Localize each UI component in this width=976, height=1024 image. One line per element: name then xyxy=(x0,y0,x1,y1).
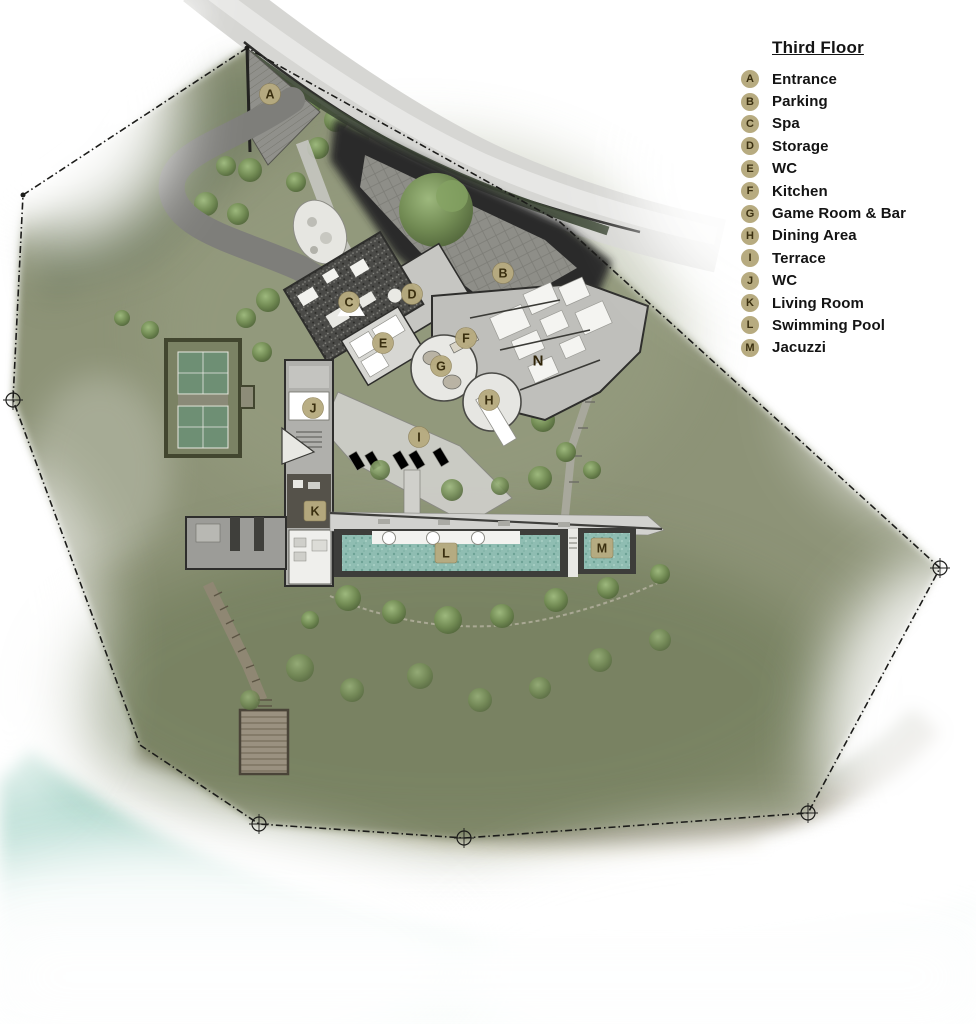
legend-badge-f: F xyxy=(741,182,759,200)
legend-badge-g: G xyxy=(741,205,759,223)
legend-badge-i: I xyxy=(741,249,759,267)
legend-badge-e: E xyxy=(741,160,759,178)
legend-item-e: EWC xyxy=(741,158,971,180)
plan-marker-k: K xyxy=(304,501,326,521)
svg-text:N: N xyxy=(533,352,544,369)
boundary-corner-dot xyxy=(245,46,250,51)
svg-text:K: K xyxy=(310,505,319,519)
legend-badge-k: K xyxy=(741,294,759,312)
plan-marker-g: G xyxy=(431,356,452,377)
legend-label-f: Kitchen xyxy=(772,183,828,200)
legend-badge-h: H xyxy=(741,227,759,245)
legend-item-a: AEntrance xyxy=(741,68,971,90)
plan-marker-e: E xyxy=(373,333,394,354)
legend-label-e: WC xyxy=(772,160,797,177)
legend-badge-c: C xyxy=(741,115,759,133)
legend-item-i: ITerrace xyxy=(741,247,971,269)
legend-item-g: GGame Room & Bar xyxy=(741,202,971,224)
legend-label-a: Entrance xyxy=(772,71,837,88)
svg-text:D: D xyxy=(407,288,416,302)
tennis-court xyxy=(166,340,254,456)
plan-marker-l: L xyxy=(435,543,457,563)
legend-label-g: Game Room & Bar xyxy=(772,205,906,222)
svg-text:H: H xyxy=(484,394,493,408)
svg-text:M: M xyxy=(597,542,607,556)
svg-text:J: J xyxy=(310,402,317,416)
legend-label-d: Storage xyxy=(772,138,829,155)
plan-marker-m: M xyxy=(591,538,613,558)
plan-marker-h: H xyxy=(479,390,500,411)
legend-badge-l: L xyxy=(741,316,759,334)
plan-marker-a: A xyxy=(260,84,281,105)
legend-item-l: LSwimming Pool xyxy=(741,314,971,336)
legend-item-f: FKitchen xyxy=(741,180,971,202)
plan-marker-c: C xyxy=(339,292,360,313)
svg-text:I: I xyxy=(417,431,420,445)
plan-marker-b: B xyxy=(493,263,514,284)
svg-text:L: L xyxy=(442,547,450,561)
legend-item-c: CSpa xyxy=(741,113,971,135)
svg-text:G: G xyxy=(436,360,446,374)
plan-marker-j: J xyxy=(303,398,324,419)
plan-marker-d: D xyxy=(402,284,423,305)
plan-marker-i: I xyxy=(409,427,430,448)
legend-badge-b: B xyxy=(741,93,759,111)
legend-badge-j: J xyxy=(741,272,759,290)
boundary-corner-dot xyxy=(21,193,26,198)
pool-zone xyxy=(330,512,664,577)
legend-badge-d: D xyxy=(741,137,759,155)
legend-label-j: WC xyxy=(772,272,797,289)
pool-steps xyxy=(568,529,578,577)
legend-items: AEntranceBParkingCSpaDStorageEWCFKitchen… xyxy=(741,68,971,359)
legend-label-i: Terrace xyxy=(772,250,826,267)
legend-label-m: Jacuzzi xyxy=(772,339,826,356)
legend-label-k: Living Room xyxy=(772,295,864,312)
svg-text:C: C xyxy=(344,296,353,310)
legend-item-j: JWC xyxy=(741,270,971,292)
legend: Third Floor AEntranceBParkingCSpaDStorag… xyxy=(741,38,971,359)
garage-block xyxy=(186,517,286,569)
plan-marker-n: N xyxy=(533,352,544,369)
legend-item-b: BParking xyxy=(741,90,971,112)
svg-text:E: E xyxy=(379,337,387,351)
legend-item-k: KLiving Room xyxy=(741,292,971,314)
legend-item-d: DStorage xyxy=(741,135,971,157)
plan-marker-f: F xyxy=(456,328,477,349)
west-wing xyxy=(282,360,333,586)
legend-item-h: HDining Area xyxy=(741,225,971,247)
legend-label-c: Spa xyxy=(772,115,800,132)
legend-label-l: Swimming Pool xyxy=(772,317,885,334)
svg-text:A: A xyxy=(265,88,274,102)
legend-badge-m: M xyxy=(741,339,759,357)
svg-text:B: B xyxy=(498,267,507,281)
legend-item-m: MJacuzzi xyxy=(741,337,971,359)
legend-title: Third Floor xyxy=(772,38,971,58)
svg-text:F: F xyxy=(462,332,470,346)
legend-label-b: Parking xyxy=(772,93,828,110)
legend-badge-a: A xyxy=(741,70,759,88)
legend-label-h: Dining Area xyxy=(772,227,857,244)
